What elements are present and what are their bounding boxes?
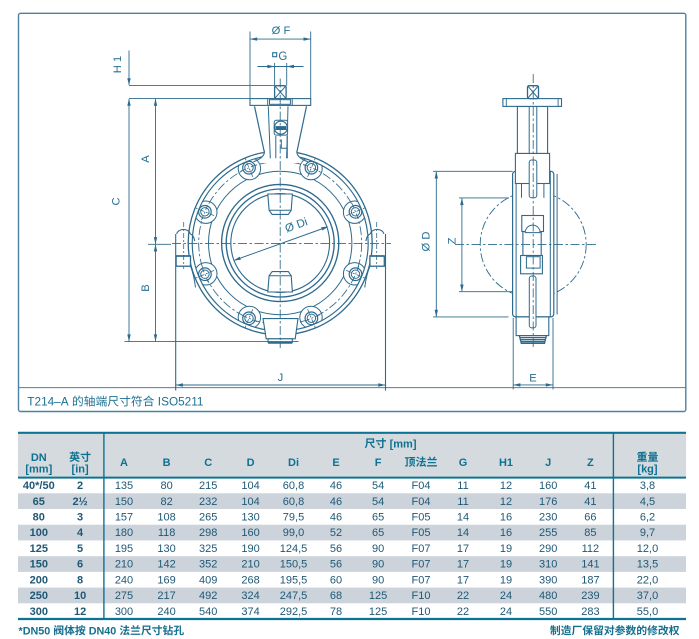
svg-text:215: 215 — [199, 480, 217, 492]
svg-text:550: 550 — [539, 606, 557, 618]
svg-text:19: 19 — [500, 574, 512, 586]
svg-text:E: E — [529, 373, 536, 385]
svg-text:112: 112 — [582, 543, 600, 555]
svg-text:409: 409 — [199, 574, 217, 586]
svg-text:F04: F04 — [412, 496, 431, 508]
svg-text:187: 187 — [581, 574, 599, 586]
svg-text:56: 56 — [330, 559, 342, 571]
svg-text:12,0: 12,0 — [637, 543, 658, 555]
svg-text:480: 480 — [539, 590, 557, 602]
svg-text:9,7: 9,7 — [640, 527, 655, 539]
svg-text:Ø D: Ø D — [421, 232, 433, 252]
svg-text:6,2: 6,2 — [640, 512, 655, 524]
svg-text:60,8: 60,8 — [283, 496, 304, 508]
svg-text:540: 540 — [199, 606, 217, 618]
svg-text:24: 24 — [500, 606, 512, 618]
svg-text:239: 239 — [581, 590, 599, 602]
svg-text:85: 85 — [584, 527, 596, 539]
svg-text:240: 240 — [115, 574, 133, 586]
svg-text:292,5: 292,5 — [280, 606, 308, 618]
svg-text:55,0: 55,0 — [637, 606, 658, 618]
svg-text:A: A — [140, 155, 152, 163]
svg-text:90: 90 — [372, 574, 384, 586]
svg-text:17: 17 — [457, 574, 469, 586]
svg-text:2½: 2½ — [72, 496, 87, 508]
svg-text:60,8: 60,8 — [283, 480, 304, 492]
svg-text:125: 125 — [369, 590, 387, 602]
svg-text:195,5: 195,5 — [280, 574, 308, 586]
svg-text:324: 324 — [241, 590, 259, 602]
svg-text:F10: F10 — [412, 590, 431, 602]
svg-text:300: 300 — [115, 606, 133, 618]
svg-text:80: 80 — [160, 480, 172, 492]
svg-text:78: 78 — [330, 606, 342, 618]
svg-text:275: 275 — [115, 590, 133, 602]
svg-text:ISO5211: ISO5211 — [158, 395, 204, 409]
svg-text:46: 46 — [330, 480, 342, 492]
svg-text:19: 19 — [500, 559, 512, 571]
svg-text:J: J — [278, 372, 284, 384]
svg-text:130: 130 — [157, 543, 175, 555]
svg-text:J: J — [545, 457, 551, 469]
svg-text:217: 217 — [157, 590, 175, 602]
svg-text:F07: F07 — [412, 559, 431, 571]
svg-text:G: G — [459, 457, 468, 469]
svg-text:12: 12 — [500, 496, 512, 508]
svg-text:142: 142 — [157, 559, 175, 571]
svg-text:390: 390 — [539, 574, 557, 586]
svg-text:14: 14 — [457, 527, 469, 539]
svg-text:268: 268 — [241, 574, 259, 586]
svg-text:118: 118 — [158, 527, 176, 539]
svg-text:8: 8 — [77, 574, 83, 586]
svg-text:79,5: 79,5 — [283, 512, 304, 524]
svg-text:157: 157 — [115, 512, 133, 524]
svg-text:DN: DN — [31, 452, 47, 464]
svg-text:125: 125 — [30, 543, 48, 555]
svg-text:19: 19 — [500, 543, 512, 555]
svg-text:104: 104 — [241, 480, 259, 492]
svg-text:F07: F07 — [412, 574, 431, 586]
svg-text:[in]: [in] — [72, 463, 89, 475]
svg-text:Di: Di — [288, 457, 299, 469]
svg-text:54: 54 — [372, 496, 384, 508]
svg-text:298: 298 — [199, 527, 217, 539]
svg-text:H1: H1 — [499, 457, 513, 469]
svg-text:290: 290 — [539, 543, 557, 555]
svg-text:60: 60 — [330, 574, 342, 586]
svg-text:Z: Z — [587, 457, 594, 469]
svg-text:37,0: 37,0 — [637, 590, 658, 602]
svg-text:Z: Z — [446, 237, 458, 244]
svg-text:200: 200 — [30, 574, 48, 586]
svg-text:210: 210 — [241, 559, 259, 571]
svg-text:265: 265 — [199, 512, 217, 524]
svg-text:141: 141 — [581, 559, 599, 571]
svg-text:14: 14 — [457, 512, 469, 524]
svg-text:B: B — [140, 284, 152, 291]
svg-text:310: 310 — [539, 559, 557, 571]
svg-text:40*/50: 40*/50 — [23, 480, 55, 492]
svg-text:232: 232 — [199, 496, 217, 508]
svg-text:F07: F07 — [412, 543, 431, 555]
svg-text:108: 108 — [157, 512, 175, 524]
svg-text:52: 52 — [330, 527, 342, 539]
svg-text:T214–A: T214–A — [27, 395, 68, 409]
svg-text:90: 90 — [372, 543, 384, 555]
svg-text:*DN50: *DN50 — [19, 625, 51, 637]
svg-text:11: 11 — [457, 480, 468, 492]
svg-text:195: 195 — [115, 543, 133, 555]
svg-text:4,5: 4,5 — [640, 496, 655, 508]
svg-text:2: 2 — [77, 480, 83, 492]
svg-text:17: 17 — [457, 559, 469, 571]
svg-text:[mm]: [mm] — [390, 438, 417, 450]
svg-text:Ø F: Ø F — [272, 25, 291, 37]
svg-text:150,5: 150,5 — [280, 559, 308, 571]
svg-text:46: 46 — [330, 496, 342, 508]
svg-text:22: 22 — [457, 606, 469, 618]
svg-text:16: 16 — [500, 527, 512, 539]
svg-text:B: B — [163, 457, 171, 469]
svg-text:250: 250 — [30, 590, 48, 602]
svg-text:10: 10 — [74, 590, 86, 602]
svg-text:80: 80 — [33, 512, 45, 524]
svg-text:54: 54 — [372, 480, 384, 492]
svg-text:D: D — [247, 457, 255, 469]
svg-text:DN40: DN40 — [89, 625, 117, 637]
svg-text:160: 160 — [539, 480, 557, 492]
svg-text:56: 56 — [330, 543, 342, 555]
svg-text:65: 65 — [372, 527, 384, 539]
svg-text:374: 374 — [241, 606, 259, 618]
svg-text:82: 82 — [160, 496, 172, 508]
svg-text:68: 68 — [330, 590, 342, 602]
svg-text:17: 17 — [457, 543, 469, 555]
svg-text:46: 46 — [330, 512, 342, 524]
svg-text:41: 41 — [584, 480, 596, 492]
svg-text:3,8: 3,8 — [640, 480, 655, 492]
svg-text:6: 6 — [77, 559, 83, 571]
svg-text:125: 125 — [369, 606, 387, 618]
svg-text:100: 100 — [30, 527, 48, 539]
svg-text:F04: F04 — [412, 480, 431, 492]
svg-text:247,5: 247,5 — [280, 590, 308, 602]
svg-text:240: 240 — [157, 606, 175, 618]
svg-text:210: 210 — [115, 559, 133, 571]
svg-text:160: 160 — [241, 527, 259, 539]
svg-text:3: 3 — [77, 512, 83, 524]
svg-text:A: A — [120, 457, 128, 469]
svg-text:11: 11 — [457, 496, 468, 508]
svg-text:66: 66 — [584, 512, 596, 524]
svg-text:169: 169 — [157, 574, 175, 586]
svg-text:130: 130 — [241, 512, 259, 524]
svg-text:F05: F05 — [412, 527, 431, 539]
svg-text:492: 492 — [199, 590, 217, 602]
svg-text:12: 12 — [74, 606, 86, 618]
svg-text:180: 180 — [115, 527, 133, 539]
svg-text:325: 325 — [199, 543, 217, 555]
svg-text:F05: F05 — [412, 512, 431, 524]
svg-text:135: 135 — [115, 480, 133, 492]
svg-text:124,5: 124,5 — [280, 543, 308, 555]
svg-text:65: 65 — [33, 496, 45, 508]
svg-text:4: 4 — [77, 527, 84, 539]
svg-text:24: 24 — [500, 590, 512, 602]
svg-text:352: 352 — [199, 559, 217, 571]
svg-text:5: 5 — [77, 543, 83, 555]
svg-text:104: 104 — [241, 496, 259, 508]
svg-text:41: 41 — [584, 496, 596, 508]
svg-text:[mm]: [mm] — [25, 463, 52, 475]
svg-text:C: C — [204, 457, 212, 469]
svg-text:90: 90 — [372, 559, 384, 571]
svg-text:[kg]: [kg] — [637, 463, 658, 475]
svg-text:150: 150 — [30, 559, 48, 571]
svg-text:283: 283 — [581, 606, 599, 618]
svg-text:65: 65 — [372, 512, 384, 524]
svg-text:12: 12 — [500, 480, 512, 492]
svg-text:13,5: 13,5 — [637, 559, 658, 571]
svg-text:176: 176 — [539, 496, 557, 508]
svg-text:22: 22 — [457, 590, 469, 602]
svg-text:G: G — [278, 51, 287, 63]
svg-text:E: E — [332, 457, 339, 469]
svg-text:300: 300 — [30, 606, 48, 618]
svg-text:255: 255 — [539, 527, 557, 539]
svg-text:C: C — [110, 197, 122, 205]
svg-text:16: 16 — [500, 512, 512, 524]
svg-text:99,0: 99,0 — [283, 527, 304, 539]
svg-text:22,0: 22,0 — [637, 574, 658, 586]
svg-text:F: F — [375, 457, 382, 469]
svg-text:230: 230 — [539, 512, 557, 524]
svg-text:F10: F10 — [412, 606, 431, 618]
svg-text:190: 190 — [241, 543, 259, 555]
svg-text:150: 150 — [115, 496, 133, 508]
svg-text:H 1: H 1 — [112, 56, 124, 73]
